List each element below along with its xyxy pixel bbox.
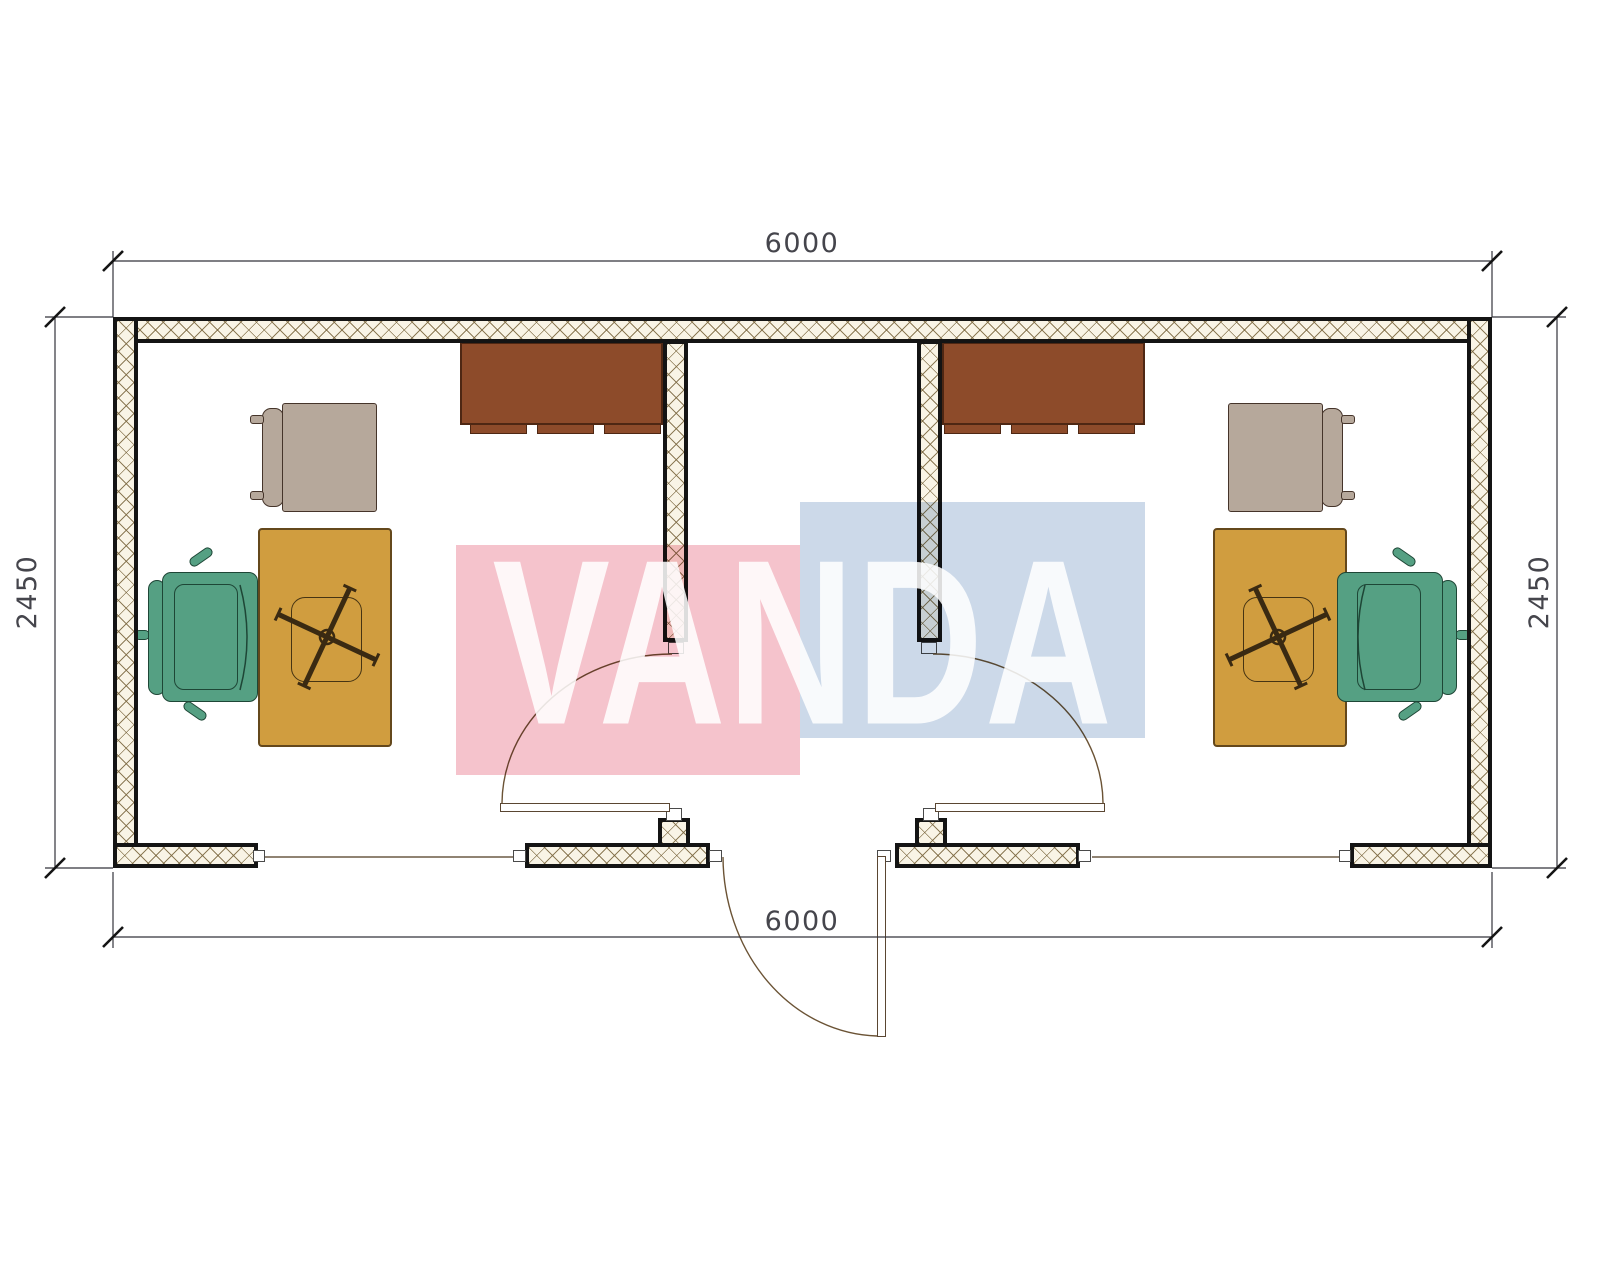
dimension-left xyxy=(45,317,113,868)
floor-plan: 6000 6000 2450 xyxy=(0,0,1600,1280)
dimension-bottom-label: 6000 xyxy=(765,906,840,937)
watermark-text: VANDA xyxy=(492,524,1113,759)
dimension-top xyxy=(113,251,1492,317)
door-swing-arc xyxy=(723,857,877,1036)
dimension-left-label: 2450 xyxy=(12,555,43,630)
chair-seam xyxy=(1358,585,1365,690)
chair-star-base xyxy=(255,565,399,709)
dimension-top-label: 6000 xyxy=(765,228,840,259)
chair-seam xyxy=(240,585,247,690)
dimension-right-label: 2450 xyxy=(1524,555,1555,630)
chair-star-base xyxy=(1206,565,1350,709)
